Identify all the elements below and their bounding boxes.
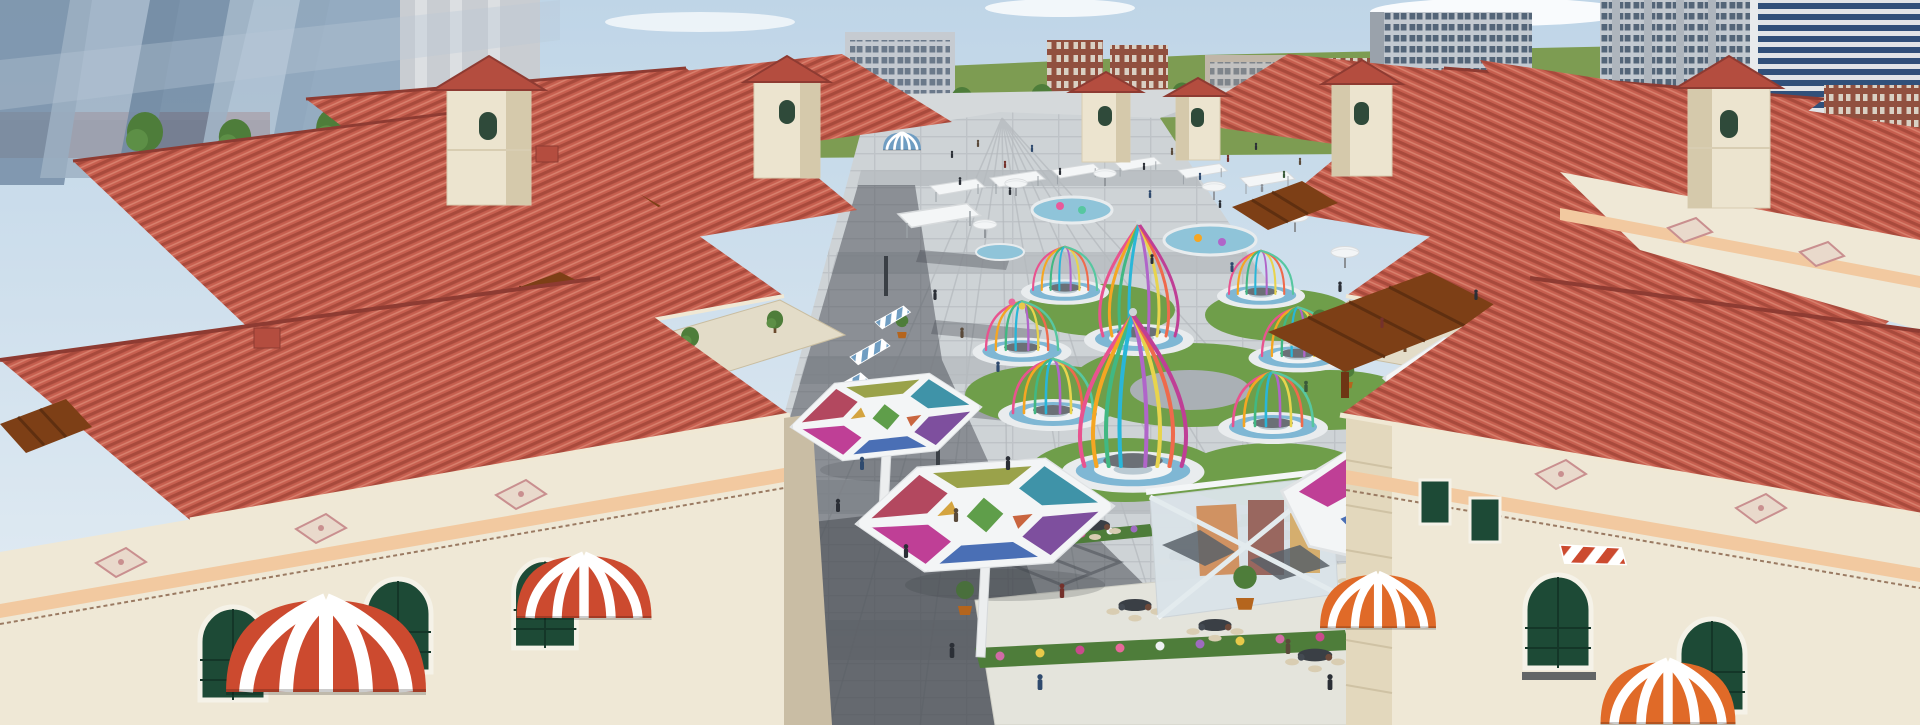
plaza-rendering [0,0,1920,725]
tower [1322,60,1402,176]
rendering-canvas [0,0,1920,725]
window [1420,480,1450,524]
cloud [605,12,795,32]
arched-window [1525,575,1591,668]
tower-large-right [1676,56,1782,208]
iron-balustrade [1522,672,1596,680]
garden-path [1130,370,1250,410]
tower [744,56,830,178]
window [1470,498,1500,542]
tower [1166,78,1230,160]
